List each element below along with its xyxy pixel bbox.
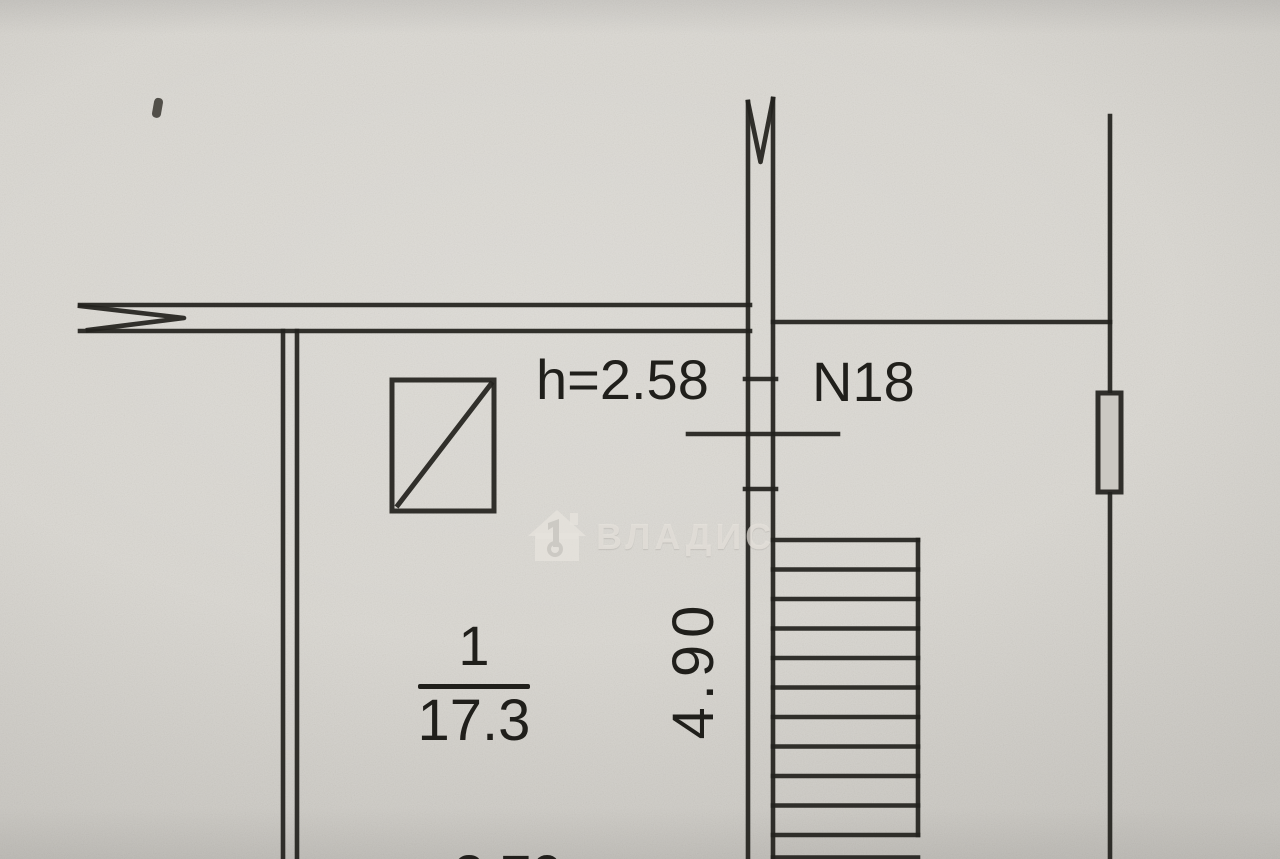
stairs-symbol xyxy=(773,540,918,858)
left-break-chevron xyxy=(80,306,184,330)
ink-speck xyxy=(151,97,163,118)
plan-linework xyxy=(0,0,1280,859)
room-number-label: 1 xyxy=(418,618,530,674)
unit-number-label: N18 xyxy=(812,354,915,410)
ceiling-height-label: h=2.58 xyxy=(536,352,709,408)
vertical-dimension-label: 4.90 xyxy=(665,599,723,740)
room-area-label: 17.3 xyxy=(414,692,534,750)
top-break-v-notch xyxy=(748,99,773,162)
floor-plan-page: ВЛАДИС h=2.58 N18 1 17.3 4.90 3.70 xyxy=(0,0,1280,859)
window-symbol xyxy=(1098,393,1121,492)
vent-square-diagonal xyxy=(398,384,491,505)
bottom-dimension-label: 3.70 xyxy=(448,847,568,859)
